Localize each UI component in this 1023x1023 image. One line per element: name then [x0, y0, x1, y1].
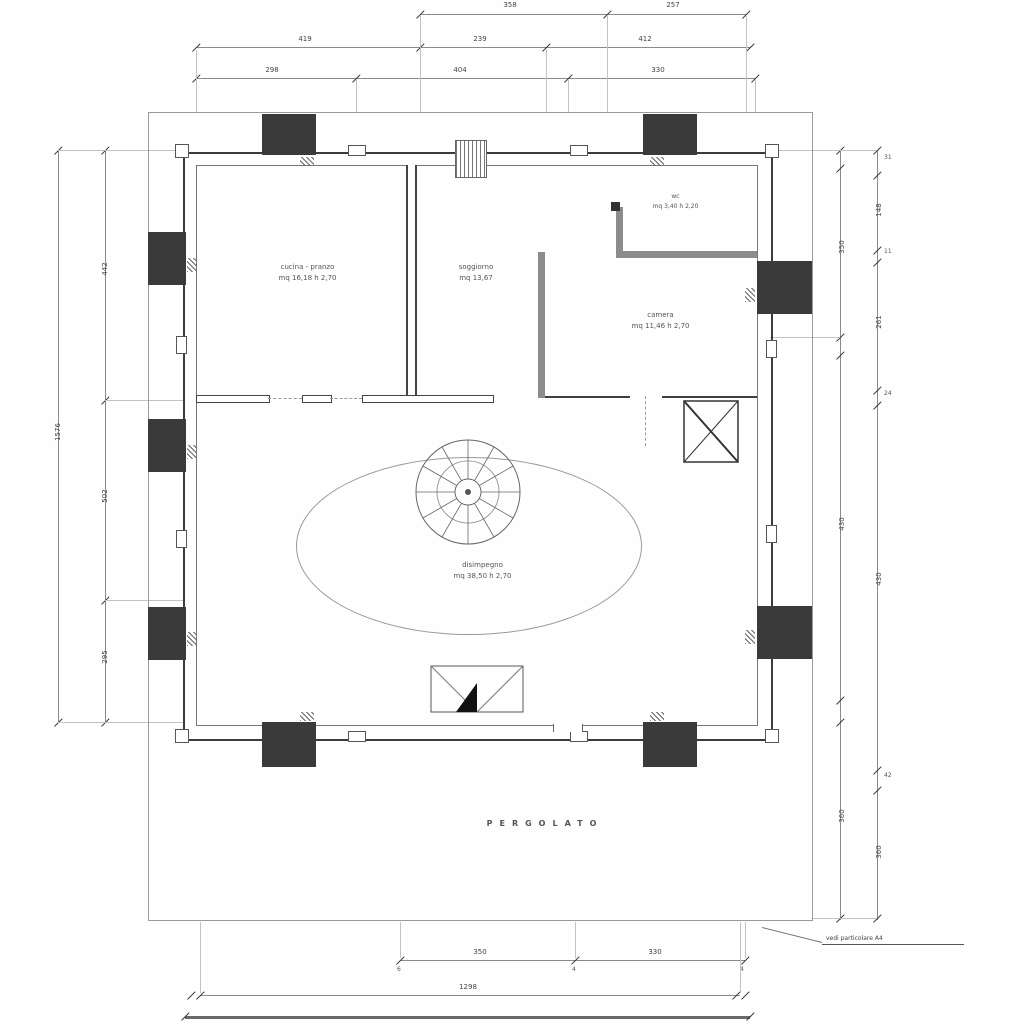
pergolato-label: PERGOLATO	[420, 818, 670, 831]
dim-label: 330	[638, 66, 678, 74]
room-name: disimpegno	[400, 560, 565, 571]
pier	[148, 419, 186, 472]
hatch-mark	[650, 157, 664, 166]
extension-line	[200, 922, 201, 993]
extension-line	[196, 50, 197, 112]
dim-label: 11	[884, 248, 892, 255]
wall-notch	[175, 729, 189, 743]
room-name: wc	[618, 192, 733, 202]
dim-line-top-1	[420, 14, 746, 15]
wall-notch	[765, 729, 779, 743]
dim-label: 412	[625, 35, 665, 43]
pier	[148, 232, 186, 285]
room-label-hall: disimpegno mq 38,50 h 2,70	[400, 560, 565, 582]
dim-label: 502	[101, 478, 109, 514]
hatch-mark	[650, 712, 664, 721]
dim-label: 1576	[54, 414, 62, 450]
room-name: cucina - pranzo	[225, 262, 390, 273]
hatch-mark	[300, 157, 314, 166]
extension-line	[745, 922, 746, 958]
dim-label: 4	[572, 966, 576, 973]
dim-label: 330	[635, 948, 675, 956]
pier	[643, 114, 697, 155]
room-name: camera	[593, 310, 728, 321]
dim-line-top-2	[196, 47, 750, 48]
extension-line	[746, 16, 747, 112]
dim-label: 1298	[448, 983, 488, 991]
room-area: mq 3,40 h 2,20	[618, 202, 733, 212]
dim-label: 148	[875, 192, 883, 228]
room-label-kitchen: cucina - pranzo mq 16,18 h 2,70	[225, 262, 390, 284]
extension-line	[420, 16, 421, 112]
hatch-mark	[300, 712, 314, 721]
window-grille	[455, 140, 487, 178]
spiral-staircase	[398, 422, 538, 562]
dim-label: 295	[101, 639, 109, 675]
extension-line	[400, 922, 401, 958]
extension-line	[607, 16, 608, 112]
door-opening	[330, 398, 362, 399]
door-opening	[268, 398, 302, 399]
extension-line	[356, 80, 357, 112]
pier	[757, 261, 812, 314]
interior-wall	[406, 165, 417, 397]
extension-line	[812, 918, 877, 919]
dim-label: 442	[101, 251, 109, 287]
interior-wall	[362, 395, 494, 403]
dim-label: 360	[838, 798, 846, 834]
wall-notch	[348, 145, 366, 156]
pier	[757, 606, 812, 659]
dim-label: 31	[884, 154, 892, 161]
dim-label: 430	[838, 506, 846, 542]
wall-notch	[766, 340, 777, 358]
dim-label: 430	[875, 561, 883, 597]
room-label-living: soggiorno mq 13,67	[420, 262, 532, 284]
dim-line-right-outer	[877, 150, 878, 920]
wall-notch	[766, 525, 777, 543]
wall-recess	[553, 724, 583, 732]
wall-notch	[176, 530, 187, 548]
dim-line-bottom-3	[185, 1016, 750, 1019]
dim-label: 350	[460, 948, 500, 956]
dim-label: 404	[440, 66, 480, 74]
dim-label: 298	[252, 66, 292, 74]
extension-line	[740, 922, 741, 993]
interior-wall	[662, 396, 757, 398]
interior-wall	[196, 395, 270, 403]
pier	[643, 722, 697, 767]
room-area: mq 16,18 h 2,70	[225, 273, 390, 284]
door-centerline	[645, 396, 646, 446]
floor-plan-drawing: 358 257 419 239 412 298 404 330 1576 442…	[0, 0, 1023, 1023]
dim-label: 360	[875, 834, 883, 870]
bedroom-wall	[538, 252, 545, 398]
hatch-mark	[745, 288, 755, 302]
dim-label: 419	[285, 35, 325, 43]
dim-label: 42	[884, 772, 892, 779]
interior-wall	[545, 396, 630, 398]
dim-label: 350	[838, 229, 846, 265]
room-area: mq 38,50 h 2,70	[400, 571, 565, 582]
hatch-mark	[187, 445, 197, 459]
dim-line-left-inner	[105, 150, 106, 722]
wall-notch	[765, 144, 779, 158]
wc-wall	[616, 207, 623, 258]
room-area: mq 11,46 h 2,70	[593, 321, 728, 332]
pier	[262, 114, 316, 155]
room-label-wc: wc mq 3,40 h 2,20	[618, 192, 733, 211]
pier	[262, 722, 316, 767]
hatch-mark	[187, 632, 197, 646]
bedroom-wall	[620, 251, 757, 258]
hatch-mark	[745, 630, 755, 644]
hatch-mark	[187, 258, 197, 272]
dim-tick	[187, 991, 196, 1000]
shaft-cross-box	[683, 400, 739, 463]
room-area: mq 13,67	[420, 273, 532, 284]
note-underline	[822, 944, 964, 945]
wall-notch	[570, 731, 588, 742]
wall-notch	[175, 144, 189, 158]
dim-label: 358	[490, 1, 530, 9]
interior-wall	[302, 395, 332, 403]
leader-line	[762, 927, 822, 943]
dim-label: 6	[397, 966, 401, 973]
extension-line	[546, 49, 547, 112]
note-text: vedi particolare A4	[826, 935, 883, 942]
wall-notch	[176, 336, 187, 354]
room-label-bedroom: camera mq 11,46 h 2,70	[593, 310, 728, 332]
extension-line	[755, 80, 756, 112]
dim-tick	[741, 991, 750, 1000]
entrance-symbol	[430, 665, 525, 715]
wall-notch	[348, 731, 366, 742]
dim-line-top-3	[196, 78, 755, 79]
extension-line	[575, 922, 576, 958]
dim-label: 239	[460, 35, 500, 43]
extension-line	[568, 80, 569, 112]
room-name: soggiorno	[420, 262, 532, 273]
dim-line-bottom-2	[200, 995, 740, 996]
dim-label: 24	[884, 390, 892, 397]
dim-label: 261	[875, 304, 883, 340]
wall-notch	[570, 145, 588, 156]
pier	[148, 607, 186, 660]
dim-label: 257	[653, 1, 693, 9]
